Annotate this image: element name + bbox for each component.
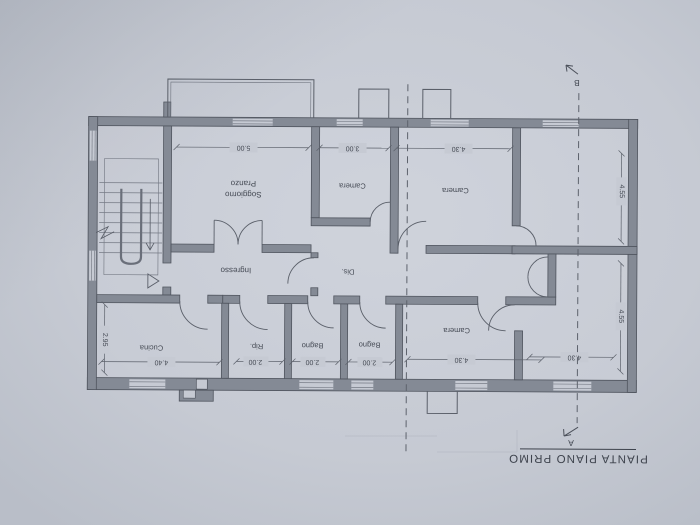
floor-plan-svg: 5.00 3.00 4.30 <box>0 0 700 525</box>
label-soggiorno: Soggiorno <box>225 190 262 199</box>
label-camera-small: Camera <box>338 181 366 190</box>
svg-text:4.30: 4.30 <box>568 354 582 361</box>
label-dis: Dis. <box>341 267 354 276</box>
svg-text:3.00: 3.00 <box>346 144 360 151</box>
label-camera-bottom: Camera <box>442 326 470 335</box>
floor-plan-photo: 5.00 3.00 4.30 <box>0 0 700 525</box>
label-camera-top-right: Camera <box>441 186 469 195</box>
plan-title: PIANTA PIANO PRIMO <box>508 452 648 465</box>
label-rip: Rip. <box>250 342 263 351</box>
svg-text:4.40: 4.40 <box>155 358 169 365</box>
svg-text:B: B <box>574 78 580 88</box>
label-bagno-left: Bagno <box>302 341 324 350</box>
label-cucina: Cucina <box>139 343 163 352</box>
outer-wall-right <box>627 119 637 392</box>
label-ingresso: Ingresso <box>220 266 251 275</box>
svg-text:5.00: 5.00 <box>237 144 251 151</box>
svg-text:4.55: 4.55 <box>618 185 625 199</box>
svg-text:4.55: 4.55 <box>617 310 624 324</box>
svg-text:2.00: 2.00 <box>249 358 263 365</box>
label-pranzo: Pranzo <box>230 179 256 188</box>
svg-text:A: A <box>568 438 574 448</box>
svg-text:4.30: 4.30 <box>452 145 466 152</box>
svg-text:2.95: 2.95 <box>101 333 108 347</box>
svg-text:4.30: 4.30 <box>455 356 469 363</box>
svg-text:2.00: 2.00 <box>306 358 320 365</box>
title-underline <box>520 449 636 450</box>
svg-text:2.00: 2.00 <box>363 359 377 366</box>
label-bagno-right: Bagno <box>359 340 381 349</box>
